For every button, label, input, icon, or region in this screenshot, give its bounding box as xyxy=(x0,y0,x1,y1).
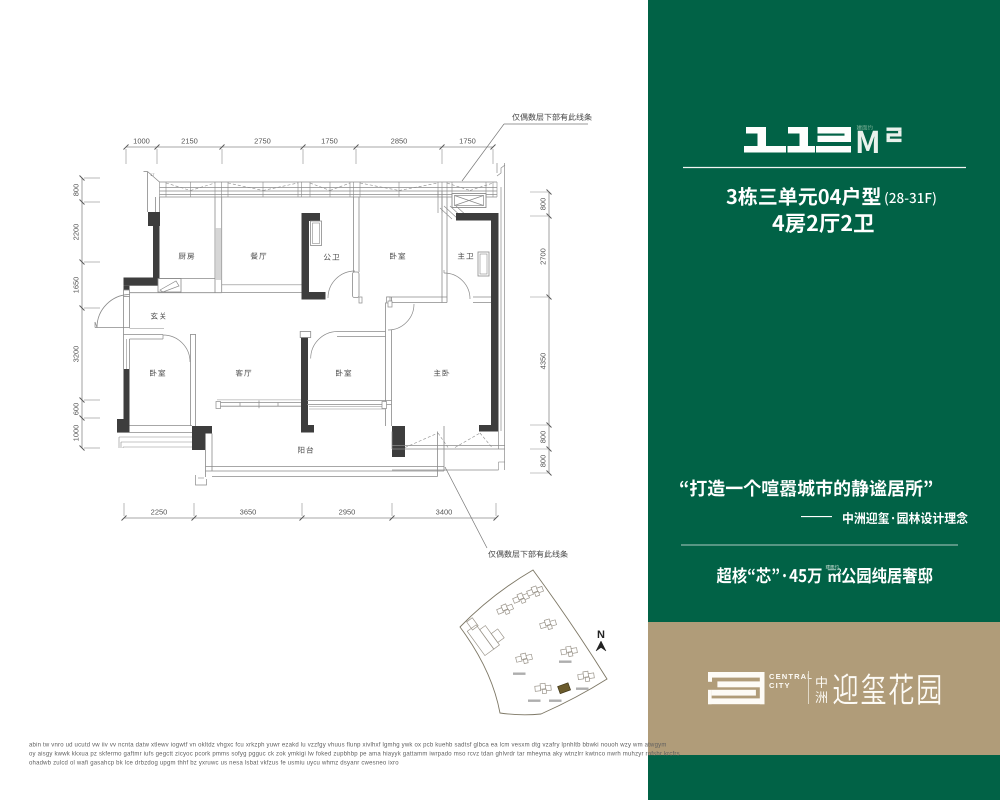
svg-text:1750: 1750 xyxy=(459,137,476,146)
svg-text:3400: 3400 xyxy=(436,508,453,517)
svg-text:3650: 3650 xyxy=(240,508,257,517)
svg-text:2200: 2200 xyxy=(72,224,81,241)
svg-text:2850: 2850 xyxy=(391,137,408,146)
svg-text:600: 600 xyxy=(72,403,81,416)
svg-text:2700: 2700 xyxy=(539,248,548,265)
svg-text:2950: 2950 xyxy=(339,508,356,517)
svg-text:17: 17 xyxy=(150,172,155,177)
svg-text:1000: 1000 xyxy=(72,425,81,442)
svg-text:2750: 2750 xyxy=(254,137,271,146)
svg-text:oy aisgy kwwk kkxua pz skfermo: oy aisgy kwwk kkxua pz skfermo gaftmr iu… xyxy=(29,752,680,758)
svg-text:2250: 2250 xyxy=(151,508,168,517)
svg-text:N: N xyxy=(597,629,605,641)
svg-text:1000: 1000 xyxy=(133,137,150,146)
svg-text:4350: 4350 xyxy=(539,353,548,370)
svg-text:1650: 1650 xyxy=(72,277,81,294)
svg-text:800: 800 xyxy=(539,198,548,211)
svg-text:CITY: CITY xyxy=(769,681,791,690)
svg-text:3200: 3200 xyxy=(72,346,81,363)
svg-text:2150: 2150 xyxy=(181,137,198,146)
svg-text:ohadwb zulcd ol wafi gasahcp b: ohadwb zulcd ol wafi gasahcp bk lce drbz… xyxy=(29,761,399,767)
svg-text:1750: 1750 xyxy=(321,137,338,146)
svg-text:800: 800 xyxy=(539,431,548,444)
svg-text:800: 800 xyxy=(72,184,81,197)
svg-text:CENTRAL: CENTRAL xyxy=(769,672,813,681)
svg-text:abin tw vnro ud ucutd vw iiv v: abin tw vnro ud ucutd vw iiv vv ncnta da… xyxy=(29,743,667,749)
svg-text:800: 800 xyxy=(539,455,548,468)
